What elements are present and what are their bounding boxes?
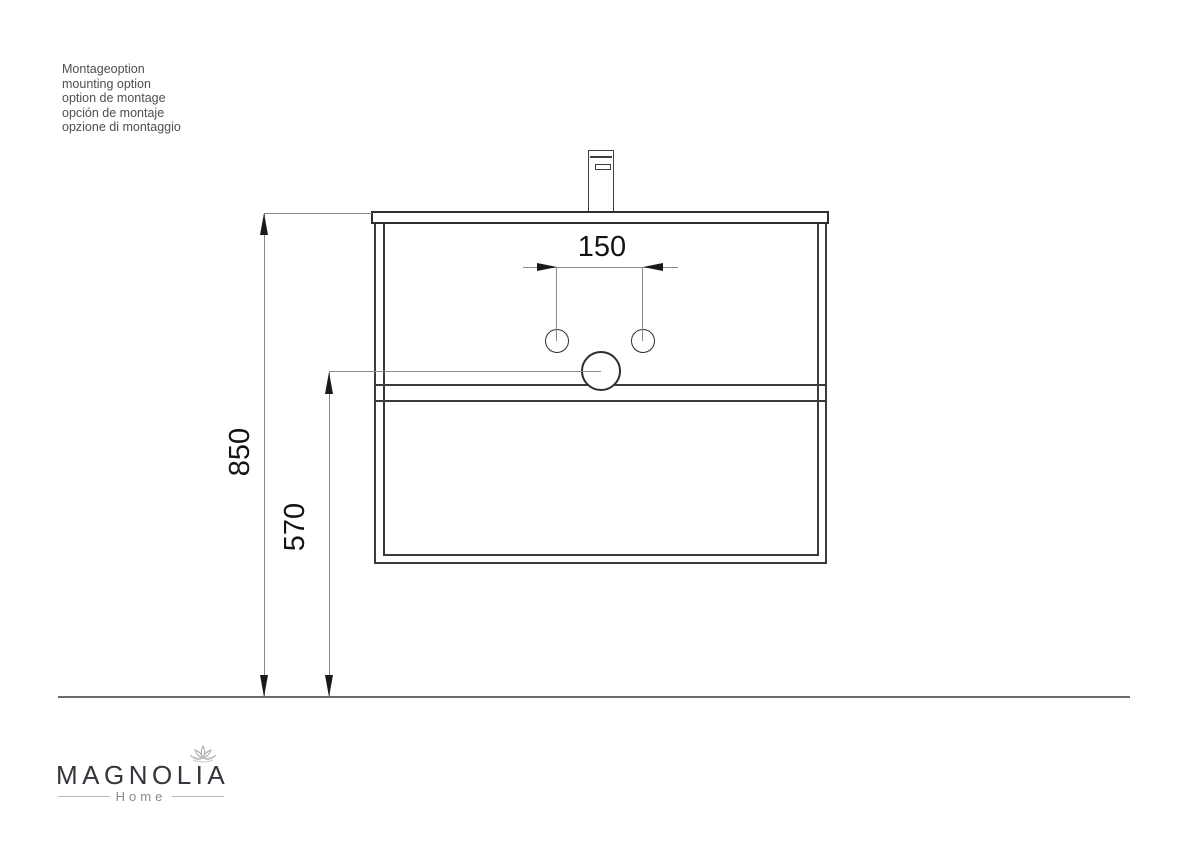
logo-home-line-right: [172, 796, 224, 797]
faucet-hole-right-circle: [631, 329, 655, 353]
countertop: [371, 211, 829, 224]
faucet-body: [588, 150, 614, 214]
dim-570-arrow-bottom: [325, 675, 333, 697]
dim-570-ref-line: [329, 371, 601, 372]
dim-850-line: [264, 213, 265, 697]
faucet-hole-left-circle: [545, 329, 569, 353]
info-line-es: opción de montaje: [62, 106, 181, 121]
dim-570-label: 570: [280, 472, 310, 582]
floor-line: [58, 696, 1130, 698]
dim-570-line: [329, 372, 330, 697]
dim-150-arrow-left: [537, 263, 557, 271]
faucet-handle: [595, 164, 611, 170]
logo-home-label: Home: [110, 789, 173, 804]
divider-line-lower: [374, 400, 827, 402]
dim-570-arrow-top: [325, 372, 333, 394]
logo-brand-text: MAGNOLIA: [56, 760, 226, 791]
dim-850-ref-line: [264, 213, 372, 214]
info-block: Montageoption mounting option option de …: [62, 62, 181, 135]
info-line-it: opzione di montaggio: [62, 120, 181, 135]
info-line-de: Montageoption: [62, 62, 181, 77]
dim-850-label: 850: [225, 397, 255, 507]
dim-150-arrow-right: [643, 263, 663, 271]
info-line-fr: option de montage: [62, 91, 181, 106]
dim-150-label: 150: [547, 232, 657, 262]
dim-150-ext-left: [556, 268, 557, 341]
info-line-en: mounting option: [62, 77, 181, 92]
page-container: Montageoption mounting option option de …: [0, 0, 1200, 849]
faucet-cap-line: [590, 156, 612, 158]
dim-850-arrow-bottom: [260, 675, 268, 697]
dim-850-arrow-top: [260, 213, 268, 235]
dim-150-ext-right: [642, 268, 643, 341]
logo-home-row: Home: [58, 789, 224, 804]
logo-home-line-left: [58, 796, 110, 797]
